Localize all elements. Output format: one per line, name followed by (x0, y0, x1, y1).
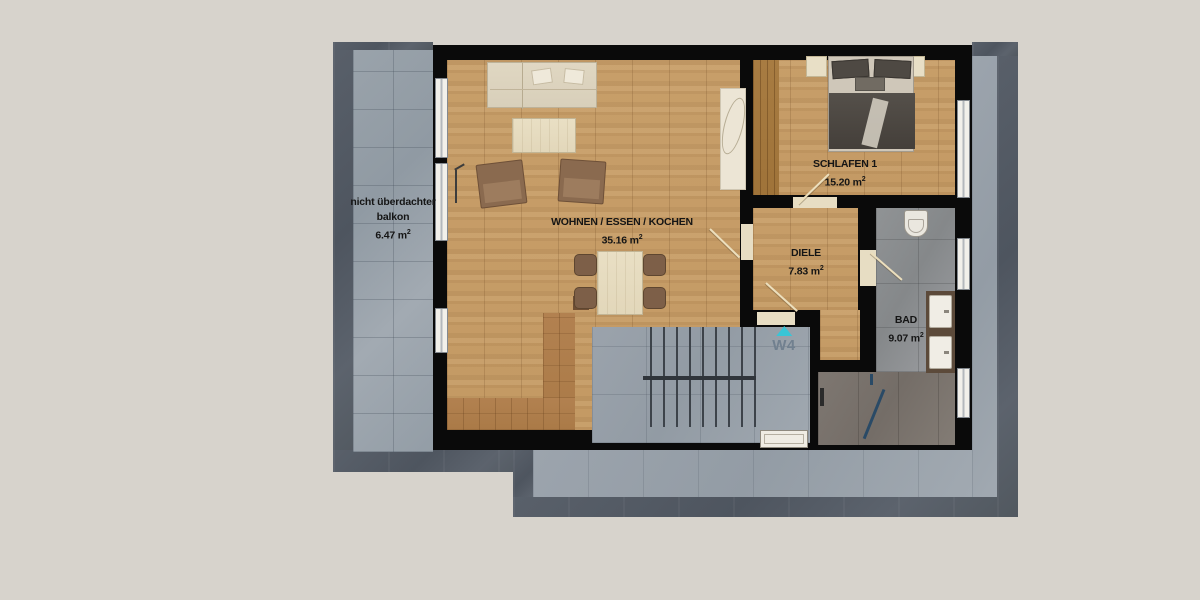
balcony-label-line1: nicht überdachter (350, 195, 435, 210)
stairwell-entry-door (760, 430, 808, 448)
sofa-pillow-1 (531, 68, 553, 86)
bedroom-name: SCHLAFEN 1 (813, 157, 877, 172)
bed (828, 56, 914, 152)
hallway-label: DIELE 7.83 m2 (788, 246, 823, 280)
window-left-2 (435, 308, 448, 353)
dining-chair-4 (643, 287, 666, 309)
sofa-seat-line (490, 89, 596, 90)
unit-marker: W4 (772, 326, 796, 354)
hallway-floor-extension (820, 310, 860, 360)
stair-handrail (643, 376, 756, 380)
bedroom-label: SCHLAFEN 1 15.20 m2 (813, 157, 877, 191)
window-bath-2 (957, 368, 970, 418)
dining-chair-3 (643, 254, 666, 276)
balcony-label: nicht überdachter balkon 6.47 m2 (350, 195, 435, 244)
unit-label: W4 (772, 337, 796, 354)
bedroom-area: 15.20 m2 (813, 172, 877, 191)
bathroom-area: 9.07 m2 (888, 328, 923, 347)
balcony-door-mark (455, 170, 457, 203)
shower-partition-tick (870, 374, 873, 385)
window-bath-1 (957, 238, 970, 290)
outer-band-top-right (972, 42, 1018, 56)
bathroom-name: BAD (888, 313, 923, 328)
walkway-right (972, 56, 997, 497)
living-room-area: 35.16 m2 (551, 230, 693, 249)
balcony-label-line2: balkon (350, 210, 435, 225)
sofa-pillow-2 (563, 68, 584, 85)
living-room-label: WOHNEN / ESSEN / KOCHEN 35.16 m2 (551, 215, 693, 249)
living-room-name: WOHNEN / ESSEN / KOCHEN (551, 215, 693, 230)
door-threshold-hall (757, 312, 795, 325)
balcony-area: 6.47 m2 (350, 225, 435, 244)
bed-pillow-small (855, 77, 885, 91)
sofa-chaise-divider (522, 63, 523, 109)
coffee-table (512, 118, 576, 153)
window-bedroom (957, 100, 970, 198)
shower-wall-handle (820, 388, 824, 406)
outer-band-bottom-right (513, 497, 1018, 517)
toilet (904, 210, 928, 237)
armchair-1 (475, 159, 527, 208)
kitchen-counter-horizontal (447, 398, 575, 430)
walkway-bottom (533, 450, 972, 497)
window-left-1 (435, 78, 448, 158)
dining-table (597, 251, 643, 315)
dining-chair-2 (574, 287, 597, 309)
nightstand-1 (806, 56, 827, 77)
living-cabinet (720, 88, 746, 190)
armchair-2 (558, 158, 607, 204)
outer-band-top-balcony (333, 42, 433, 50)
door-threshold-living (741, 224, 753, 260)
balcony (353, 50, 433, 452)
dining-chair-1 (574, 254, 597, 276)
unit-marker-triangle-icon (776, 326, 792, 336)
outer-band-bottom-left (333, 450, 533, 472)
bed-pillow-2 (874, 59, 912, 79)
hallway-area: 7.83 m2 (788, 261, 823, 280)
outer-band-left (333, 42, 353, 472)
sofa (487, 62, 597, 108)
sink-basin-2 (929, 336, 952, 369)
sink-basin-1 (929, 295, 952, 328)
bathroom-label: BAD 9.07 m2 (888, 313, 923, 347)
balcony-door-window (435, 163, 448, 241)
floor-plan-canvas: nicht überdachter balkon 6.47 m2 WOHNEN … (0, 0, 1200, 600)
outer-band-right (997, 42, 1018, 517)
hallway-name: DIELE (788, 246, 823, 261)
bedroom-wardrobe (753, 60, 779, 195)
shower-room-floor (818, 372, 955, 445)
